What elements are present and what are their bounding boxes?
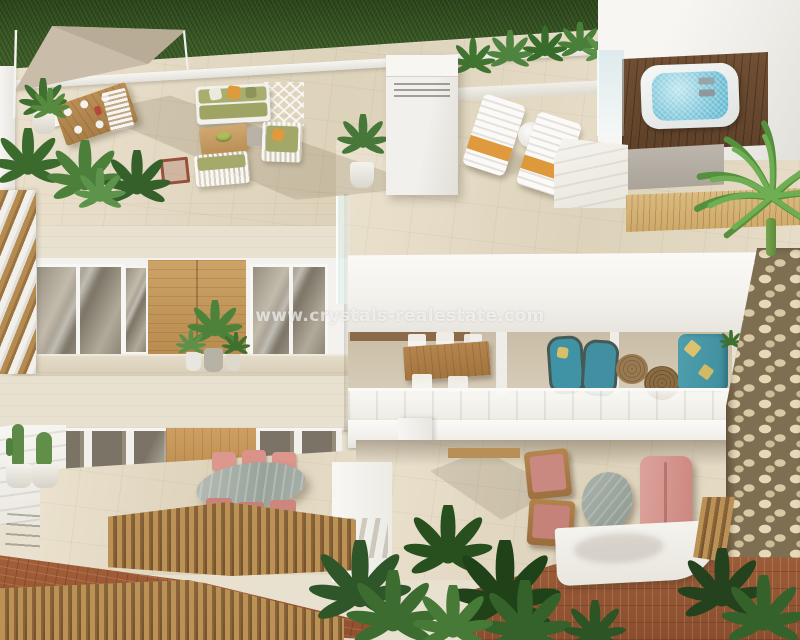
pergola-slats — [0, 190, 36, 374]
window-left — [34, 264, 124, 358]
hanging-chair — [546, 335, 586, 395]
picket-fence-lower — [0, 580, 344, 640]
cactus — [36, 432, 52, 468]
glass-panel — [597, 50, 624, 136]
cactus — [12, 424, 24, 468]
villa-render: www.crystals-realestate.com — [0, 0, 800, 640]
vent-chimney — [386, 55, 458, 195]
window-mullion — [76, 267, 80, 355]
left-slab-upper — [0, 192, 350, 260]
white-stairs — [554, 138, 628, 208]
armchair-cushion-rose — [529, 453, 567, 492]
roof-plant-left2 — [28, 88, 72, 132]
balcony-plant — [174, 330, 208, 364]
balcony-plant — [220, 332, 252, 364]
pillow-yellow — [683, 339, 701, 357]
fruit-bowl — [215, 131, 232, 143]
interior-mullion — [496, 332, 507, 394]
pillow-olive — [245, 87, 257, 99]
roof-sofa — [195, 83, 271, 125]
jacuzzi-jets — [698, 77, 714, 85]
roof-bench — [194, 151, 251, 188]
chimney-vents — [394, 83, 450, 101]
plant-pot — [32, 464, 58, 488]
pitcher — [94, 105, 103, 115]
tropical-cluster — [408, 585, 498, 640]
pillow-yellow — [556, 346, 568, 358]
left-slab-lower — [0, 372, 350, 430]
jacuzzi-jets — [699, 89, 715, 97]
palm-trunk — [766, 218, 776, 256]
pillow-yellow — [698, 364, 715, 381]
chimney-cap — [386, 55, 458, 77]
glass-balustrade-edge — [336, 196, 350, 304]
sofa-seat-line — [664, 462, 667, 528]
jacuzzi-water — [651, 71, 729, 122]
right-plant — [716, 575, 800, 640]
timber-armchair — [524, 448, 573, 500]
plate — [73, 125, 83, 135]
plate — [79, 99, 89, 109]
roof-armchair — [261, 121, 302, 162]
palm-tree-highlight — [706, 132, 800, 262]
leaf-shadow — [573, 531, 664, 566]
sofa-seat — [199, 102, 268, 120]
right-plant — [560, 600, 630, 640]
plant-pot — [6, 464, 32, 488]
window-slim — [124, 266, 148, 354]
watermark: www.crystals-realestate.com — [240, 306, 560, 326]
plate — [94, 119, 104, 129]
bench-cushion — [197, 154, 246, 171]
wood-door-step — [448, 448, 520, 458]
wicker-table — [616, 354, 648, 384]
pillow-white — [208, 87, 222, 101]
cactus-arm — [6, 438, 13, 456]
lounger-towel-orange — [467, 135, 513, 162]
roof-plant-right — [334, 114, 392, 172]
pillow-orange — [227, 85, 241, 99]
